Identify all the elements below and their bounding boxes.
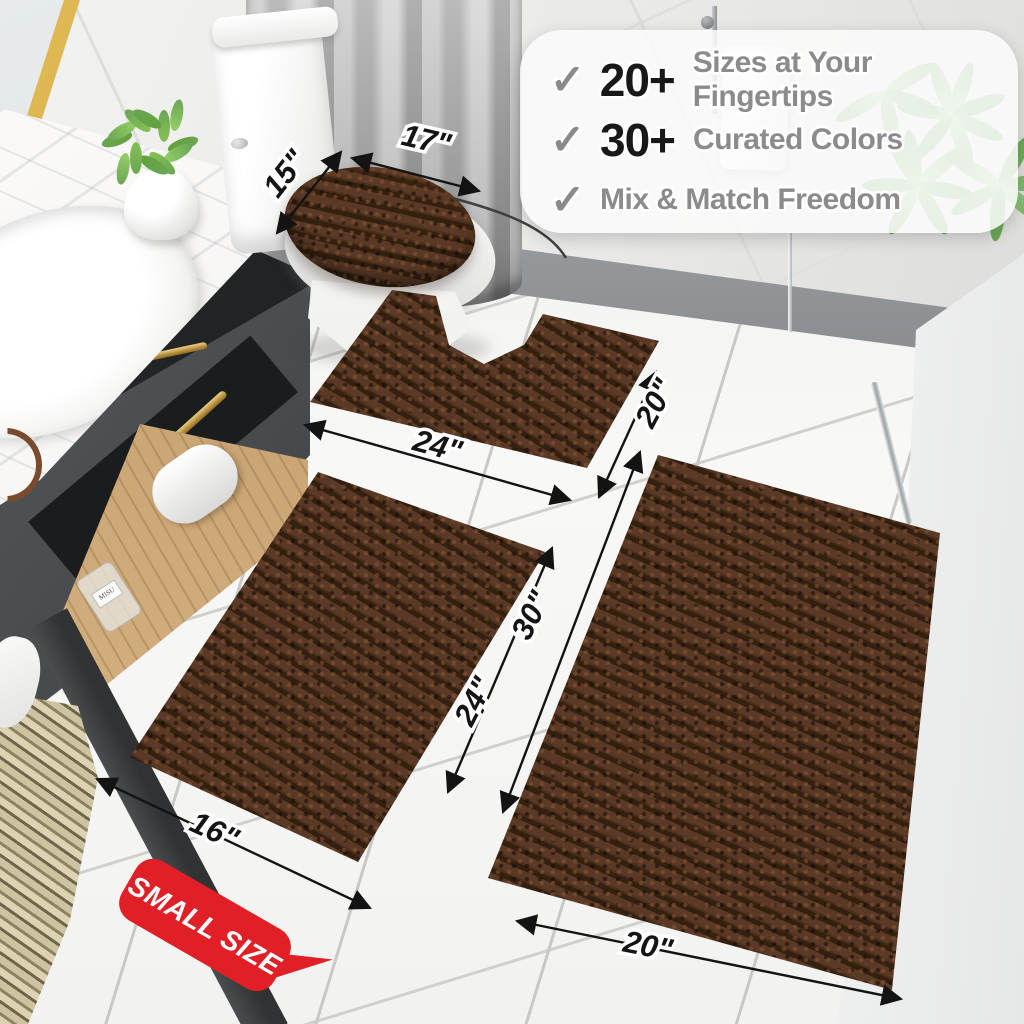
- callout-row: ✓ 20+ Sizes at Your Fingertips: [550, 54, 1018, 106]
- dim-label-contour-depth: 20": [627, 372, 682, 434]
- dim-line-large-width: [517, 921, 901, 999]
- callout-stat: 30+: [600, 113, 675, 167]
- small-size-badge: SMALL SIZE: [112, 852, 333, 1019]
- dim-label-small-width: 16": [185, 804, 246, 857]
- dim-label-lid-height: 15": [256, 142, 315, 203]
- check-icon: ✓: [550, 59, 600, 101]
- dim-label-lid-width: 17": [398, 117, 455, 162]
- bathroom-product-photo: MISU 15" 17" 24" 20" 16" 24" 30": [0, 0, 1024, 1024]
- callout-label: Curated Colors: [693, 123, 903, 157]
- callout-label: Sizes at Your Fingertips: [693, 46, 1018, 114]
- dim-line-small-length: [448, 548, 552, 792]
- feature-callout: ✓ 20+ Sizes at Your Fingertips ✓ 30+ Cur…: [520, 30, 1018, 233]
- callout-label: Mix & Match Freedom: [600, 183, 901, 217]
- callout-row: ✓ Mix & Match Freedom: [550, 174, 1018, 226]
- dim-label-large-width: 20": [620, 924, 677, 968]
- check-icon: ✓: [550, 119, 600, 161]
- check-icon: ✓: [550, 179, 600, 221]
- callout-row: ✓ 30+ Curated Colors: [550, 114, 1018, 166]
- dim-label-large-length: 30": [504, 584, 558, 645]
- callout-stat: 20+: [600, 53, 675, 107]
- dim-label-small-length: 24": [446, 670, 501, 732]
- dim-line-lid-width: [352, 158, 479, 191]
- dim-label-contour-width: 24": [408, 422, 467, 469]
